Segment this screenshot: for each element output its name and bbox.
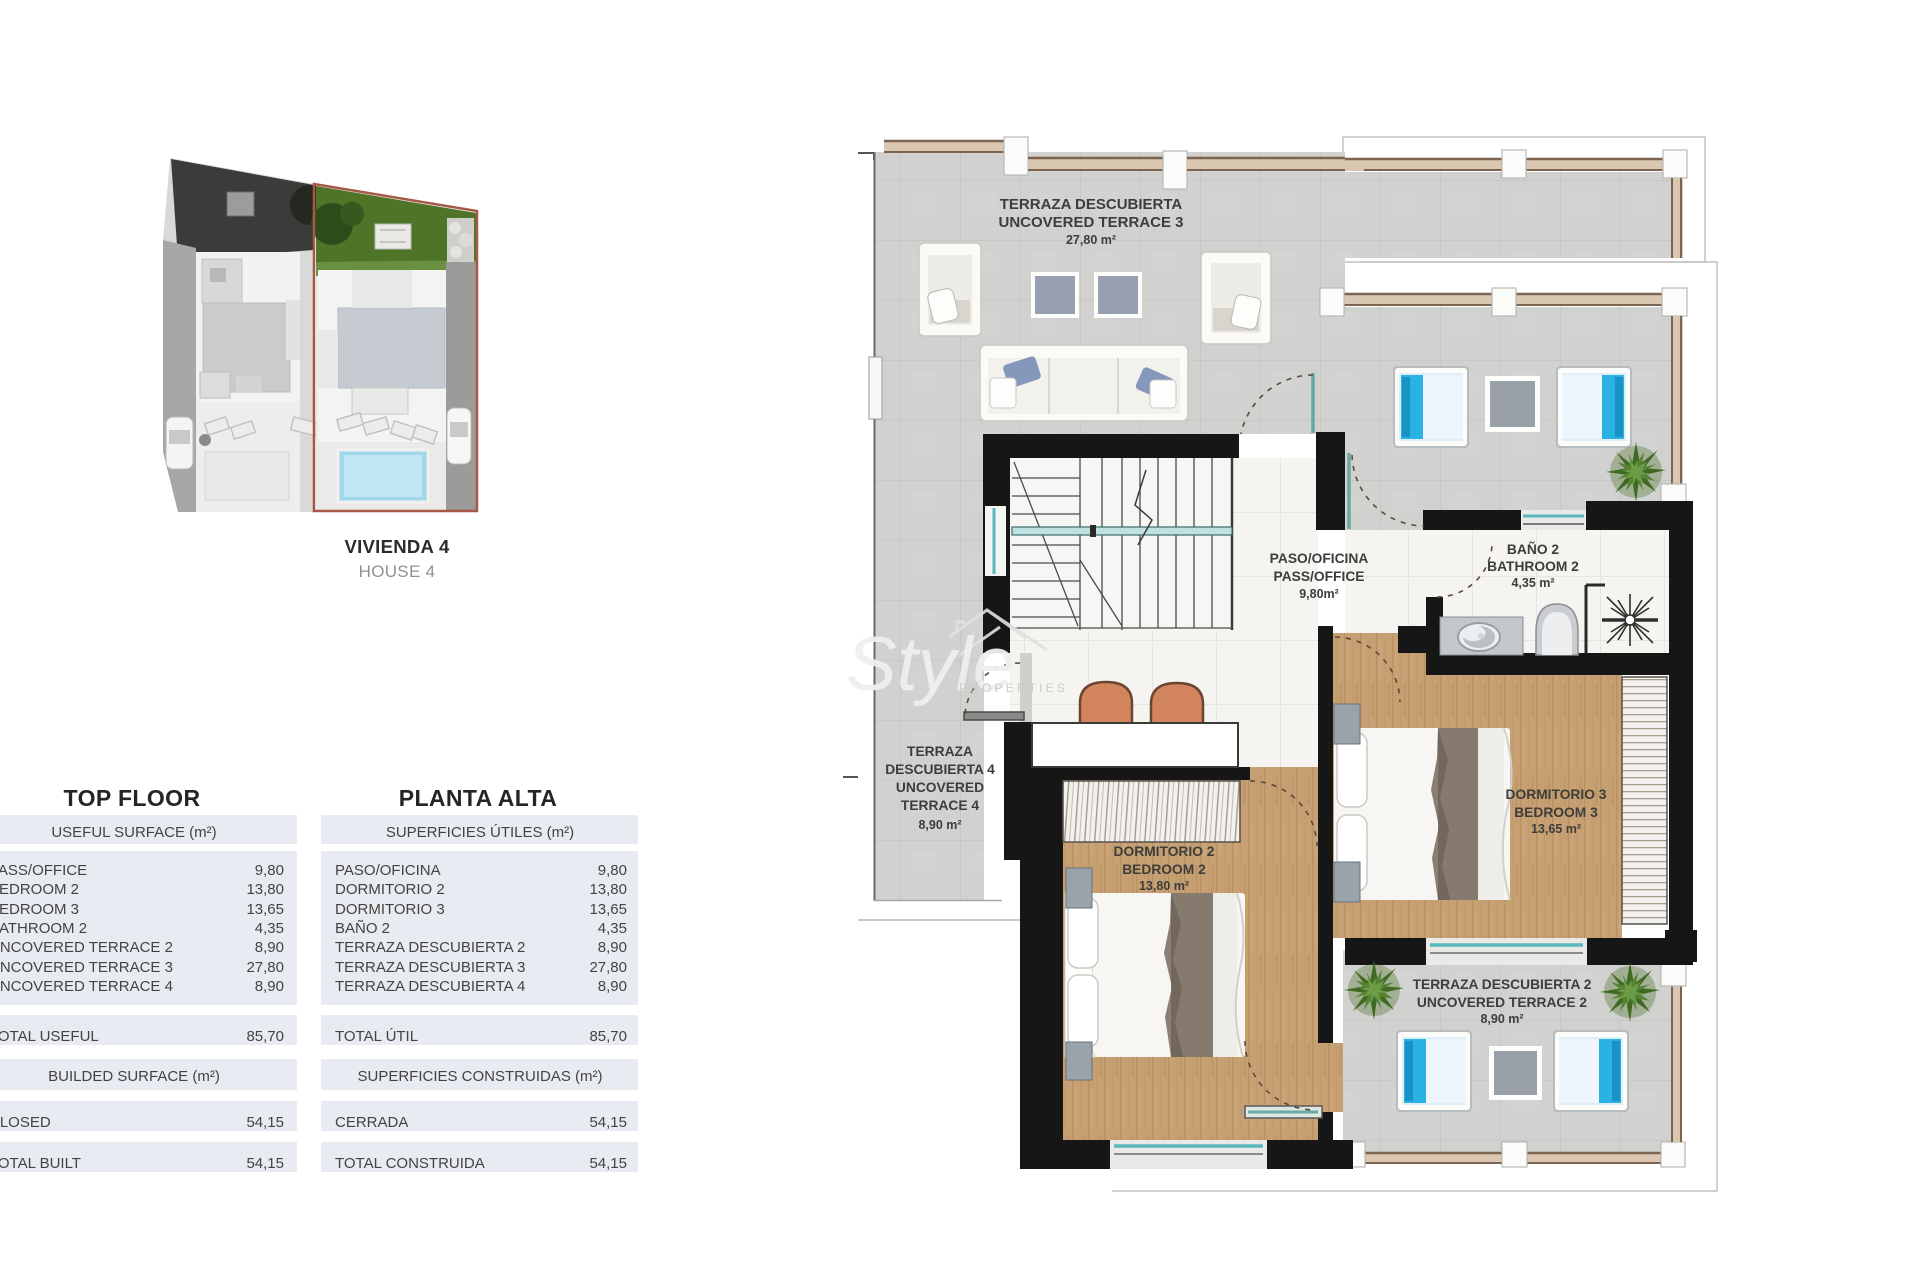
svg-text:9,80: 9,80 <box>598 862 627 879</box>
svg-text:DORMITORIO 3: DORMITORIO 3 <box>335 901 445 918</box>
svg-text:PASO/OFICINA: PASO/OFICINA <box>1270 551 1369 566</box>
svg-text:PASS/OFFICE: PASS/OFFICE <box>0 862 87 879</box>
svg-text:85,70: 85,70 <box>589 1028 627 1045</box>
svg-text:BATHROOM 2: BATHROOM 2 <box>0 920 87 937</box>
svg-text:13,80: 13,80 <box>246 881 284 898</box>
svg-text:PLANTA ALTA: PLANTA ALTA <box>399 785 558 811</box>
svg-text:UNCOVERED TERRACE 3: UNCOVERED TERRACE 3 <box>0 959 173 976</box>
svg-text:TERRAZA: TERRAZA <box>907 744 973 759</box>
svg-text:DORMITORIO 2: DORMITORIO 2 <box>335 881 445 898</box>
svg-text:DORMITORIO 2: DORMITORIO 2 <box>1114 844 1215 859</box>
svg-text:13,80 m²: 13,80 m² <box>1139 879 1189 893</box>
svg-text:54,15: 54,15 <box>589 1155 627 1172</box>
svg-text:UNCOVERED: UNCOVERED <box>896 780 984 795</box>
svg-text:13,65: 13,65 <box>589 901 627 918</box>
svg-text:BAÑO 2: BAÑO 2 <box>335 920 390 937</box>
svg-text:PASS/OFFICE: PASS/OFFICE <box>1274 569 1365 584</box>
svg-text:8,90: 8,90 <box>598 939 627 956</box>
svg-text:8,90: 8,90 <box>598 978 627 995</box>
svg-text:TOTAL USEFUL: TOTAL USEFUL <box>0 1028 99 1045</box>
svg-text:8,90 m²: 8,90 m² <box>1480 1012 1523 1026</box>
svg-text:TOTAL BUILT: TOTAL BUILT <box>0 1155 81 1172</box>
svg-text:4,35 m²: 4,35 m² <box>1511 576 1554 590</box>
svg-text:8,90: 8,90 <box>255 978 284 995</box>
svg-text:9,80m²: 9,80m² <box>1299 587 1339 601</box>
svg-text:4,35: 4,35 <box>255 920 284 937</box>
svg-text:27,80: 27,80 <box>246 959 284 976</box>
svg-text:HOUSE 4: HOUSE 4 <box>359 562 436 581</box>
svg-text:UNCOVERED TERRACE 2: UNCOVERED TERRACE 2 <box>1417 995 1588 1010</box>
svg-text:13,65: 13,65 <box>246 901 284 918</box>
svg-text:VIVIENDA 4: VIVIENDA 4 <box>344 536 450 557</box>
svg-text:13,65 m²: 13,65 m² <box>1531 822 1581 836</box>
svg-text:BUILDED SURFACE (m²): BUILDED SURFACE (m²) <box>48 1068 220 1085</box>
svg-text:SUPERFICIES ÚTILES (m²): SUPERFICIES ÚTILES (m²) <box>386 824 574 841</box>
svg-text:8,90 m²: 8,90 m² <box>918 818 961 832</box>
svg-text:8,90: 8,90 <box>255 939 284 956</box>
svg-text:27,80: 27,80 <box>589 959 627 976</box>
svg-text:UNCOVERED TERRACE 4: UNCOVERED TERRACE 4 <box>0 978 173 995</box>
svg-text:TERRAZA DESCUBIERTA 2: TERRAZA DESCUBIERTA 2 <box>335 939 525 956</box>
svg-text:DORMITORIO 3: DORMITORIO 3 <box>1506 787 1607 802</box>
svg-text:54,15: 54,15 <box>589 1114 627 1131</box>
svg-text:CLOSED: CLOSED <box>0 1114 51 1131</box>
svg-text:UNCOVERED TERRACE 2: UNCOVERED TERRACE 2 <box>0 939 173 956</box>
svg-text:BEDROOM 2: BEDROOM 2 <box>1122 862 1206 877</box>
svg-text:BEDROOM 3: BEDROOM 3 <box>0 901 79 918</box>
svg-text:4,35: 4,35 <box>598 920 627 937</box>
svg-text:TERRAZA DESCUBIERTA 2: TERRAZA DESCUBIERTA 2 <box>1413 977 1592 992</box>
svg-text:TOTAL ÚTIL: TOTAL ÚTIL <box>335 1028 418 1045</box>
svg-text:BAÑO 2: BAÑO 2 <box>1507 540 1559 557</box>
svg-text:85,70: 85,70 <box>246 1028 284 1045</box>
svg-text:USEFUL SURFACE (m²): USEFUL SURFACE (m²) <box>51 824 216 841</box>
svg-text:27,80 m²: 27,80 m² <box>1066 233 1116 247</box>
svg-text:CERRADA: CERRADA <box>335 1114 408 1131</box>
svg-text:TERRAZA DESCUBIERTA 3: TERRAZA DESCUBIERTA 3 <box>335 959 525 976</box>
svg-text:PASO/OFICINA: PASO/OFICINA <box>335 862 441 879</box>
svg-text:TERRAZA DESCUBIERTA: TERRAZA DESCUBIERTA <box>1000 196 1183 213</box>
svg-text:UNCOVERED TERRACE 3: UNCOVERED TERRACE 3 <box>998 214 1183 231</box>
svg-text:TERRACE 4: TERRACE 4 <box>901 798 980 813</box>
svg-text:54,15: 54,15 <box>246 1155 284 1172</box>
svg-text:BATHROOM 2: BATHROOM 2 <box>1487 559 1579 574</box>
svg-text:9,80: 9,80 <box>255 862 284 879</box>
svg-text:TERRAZA DESCUBIERTA 4: TERRAZA DESCUBIERTA 4 <box>335 978 525 995</box>
svg-text:TOP FLOOR: TOP FLOOR <box>64 785 201 811</box>
svg-text:54,15: 54,15 <box>246 1114 284 1131</box>
svg-text:13,80: 13,80 <box>589 881 627 898</box>
svg-text:BEDROOM 3: BEDROOM 3 <box>1514 805 1598 820</box>
svg-text:PROPERTIES: PROPERTIES <box>959 681 1068 695</box>
svg-text:BEDROOM 2: BEDROOM 2 <box>0 881 79 898</box>
svg-text:SUPERFICIES CONSTRUIDAS (m²): SUPERFICIES CONSTRUIDAS (m²) <box>357 1068 602 1085</box>
svg-text:TOTAL CONSTRUIDA: TOTAL CONSTRUIDA <box>335 1155 485 1172</box>
svg-text:DESCUBIERTA 4: DESCUBIERTA 4 <box>885 762 995 777</box>
